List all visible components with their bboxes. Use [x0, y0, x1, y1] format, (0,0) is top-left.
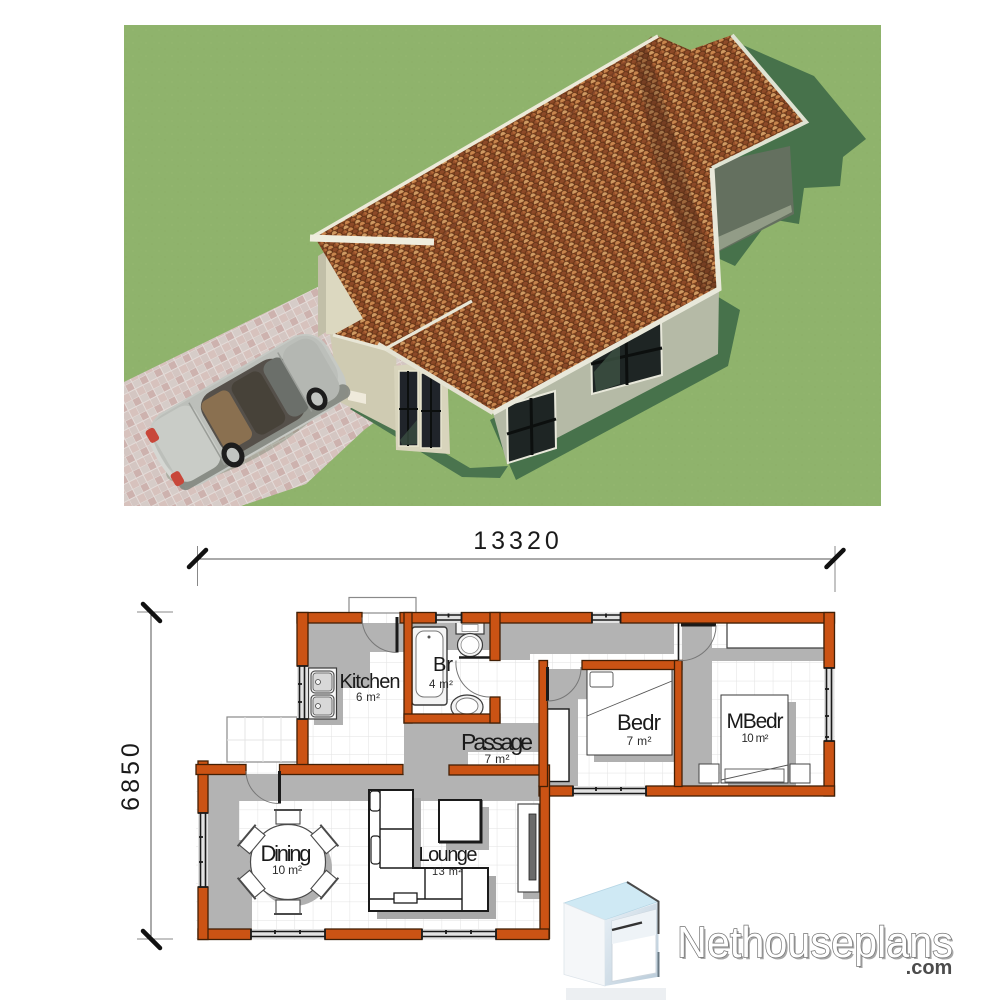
svg-text:Br: Br: [433, 654, 453, 676]
svg-text:Bedr: Bedr: [617, 710, 661, 735]
svg-text:7 m²: 7 m²: [627, 734, 652, 748]
svg-text:Kitchen: Kitchen: [340, 671, 401, 693]
svg-text:10 m²: 10 m²: [742, 733, 769, 745]
svg-text:13 m²: 13 m²: [432, 866, 462, 878]
svg-text:MBedr: MBedr: [727, 710, 784, 733]
svg-text:13320: 13320: [473, 527, 563, 555]
svg-text:10 m²: 10 m²: [272, 863, 302, 877]
svg-text:6 m²: 6 m²: [356, 692, 380, 704]
svg-text:.com: .com: [906, 957, 953, 979]
svg-text:6850: 6850: [117, 739, 145, 811]
svg-text:Lounge: Lounge: [419, 844, 478, 866]
svg-text:4 m²: 4 m²: [429, 679, 453, 691]
svg-text:7 m²: 7 m²: [485, 752, 510, 766]
